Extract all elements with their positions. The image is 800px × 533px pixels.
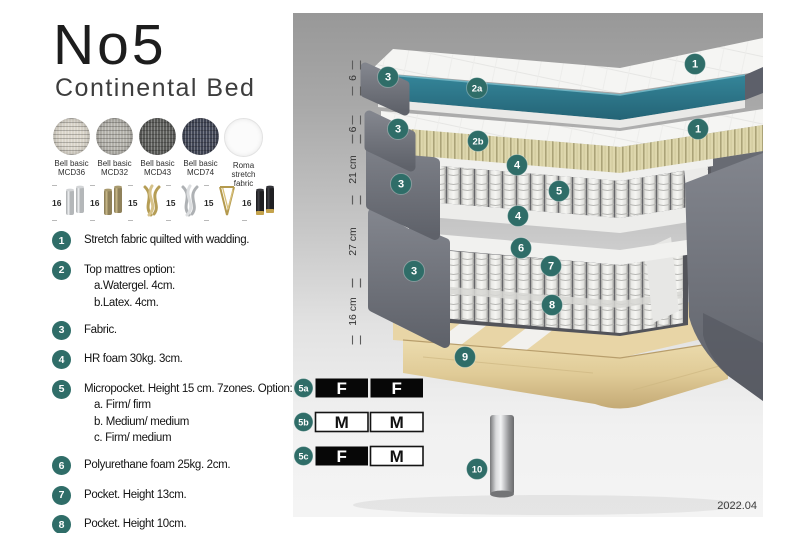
callout-label: 8: [549, 300, 555, 312]
bed-cross-section-diagram: 6621 cm27 cm16 cm 12a312b345346738910 5a…: [293, 13, 763, 517]
firmness-cell-label: M: [335, 413, 349, 432]
firmness-row-id: 5a: [298, 383, 309, 393]
leg-twist-gold-icon: [140, 184, 164, 223]
callout-badge-3: 3: [388, 119, 409, 140]
leg-hairpin-gold-icon: [216, 184, 240, 223]
legend-text: Top mattres option:: [84, 261, 175, 278]
fabric-swatch-circle: [96, 118, 133, 155]
callout-badge-3: 3: [391, 174, 412, 195]
leg-cylinder-brass-icon: [102, 184, 126, 223]
swatch-mcd36: Bell basicMCD36: [50, 118, 93, 188]
callout-badge-3: 3: [378, 67, 399, 88]
legend-number-badge: 5: [52, 380, 71, 399]
swatch-mcd74: Bell basicMCD74: [179, 118, 222, 188]
swatch-code: MCD36: [58, 168, 85, 177]
callout-badge-1: 1: [688, 119, 709, 140]
leg-option-twist-gold: 15: [128, 184, 166, 222]
legend-subtext: a. Firm/ firm: [94, 396, 292, 413]
callout-label: 1: [695, 124, 701, 136]
callout-label: 7: [548, 261, 554, 273]
swatch-mcd43: Bell basicMCD43: [136, 118, 179, 188]
legend-text-block: Pocket. Height 13cm.: [84, 486, 186, 505]
fabric-swatch-circle: [139, 118, 176, 155]
legend-text: Pocket. Height 13cm.: [84, 486, 186, 503]
callout-badge-1: 1: [685, 54, 706, 75]
legend-number-badge: 6: [52, 456, 71, 475]
callout-badge-6: 6: [511, 238, 532, 259]
callout-badge-5: 5: [549, 181, 570, 202]
legend-number-badge: 4: [52, 350, 71, 369]
page-subtitle: Continental Bed: [55, 74, 255, 103]
fabric-swatch-circle: [224, 118, 263, 157]
swatch-roma: Romastretch fabric: [222, 118, 265, 188]
legend-text-block: Fabric.: [84, 321, 117, 340]
legend-item-4: 4HR foam 30kg. 3cm.: [52, 350, 302, 369]
swatch-name: Bell basic: [54, 159, 88, 168]
legend-subtext: c. Firm/ medium: [94, 429, 292, 446]
legend-item-6: 6Polyurethane foam 25kg. 2cm.: [52, 456, 302, 475]
leg-height-label: 16: [52, 198, 64, 208]
legend-item-1: 1Stretch fabric quilted with wadding.: [52, 231, 302, 250]
swatch-name: Bell basic: [183, 159, 217, 168]
legend-item-2: 2Top mattres option:a.Watergel. 4cm.b.La…: [52, 261, 302, 311]
swatch-code: MCD32: [101, 168, 128, 177]
leg-height-label: 15: [128, 198, 140, 208]
diagram-panel: 6621 cm27 cm16 cm 12a312b345346738910 5a…: [293, 13, 763, 517]
swatch-name: Bell basic: [140, 159, 174, 168]
callout-label: 2a: [472, 84, 483, 95]
callout-badge-4: 4: [508, 206, 529, 227]
callout-badge-7: 7: [541, 256, 562, 277]
callout-badge-4: 4: [507, 155, 528, 176]
firmness-row-id: 5b: [298, 417, 309, 427]
legend-text-block: HR foam 30kg. 3cm.: [84, 350, 183, 369]
page: No5 Continental Bed Bell basicMCD36Bell …: [0, 0, 800, 533]
leg-height-label: 16: [242, 198, 254, 208]
ruler-label: 21 cm: [347, 155, 359, 184]
leg-options-row: 161615151516: [52, 184, 280, 222]
callout-label: 2b: [472, 137, 483, 148]
callout-badge-3: 3: [404, 261, 425, 282]
legend-text-block: Micropocket. Height 15 cm. 7zones. Optio…: [84, 380, 292, 446]
swatch-code: MCD43: [144, 168, 171, 177]
version-stamp: 2022.04: [717, 500, 757, 512]
firmness-cell-label: M: [390, 447, 404, 466]
metal-leg-front: [490, 415, 514, 498]
leg-cylinder-black-gold-icon: [254, 184, 278, 223]
firmness-row-id: 5c: [298, 451, 308, 461]
legend-number-badge: 2: [52, 261, 71, 280]
legend-text: Fabric.: [84, 321, 117, 338]
legend-number-badge: 3: [52, 321, 71, 340]
callout-label: 10: [472, 465, 483, 476]
ruler-label: 27 cm: [347, 227, 359, 256]
legend-text-block: Top mattres option:a.Watergel. 4cm.b.Lat…: [84, 261, 175, 311]
legend-text: Stretch fabric quilted with wadding.: [84, 231, 249, 248]
legend-item-5: 5Micropocket. Height 15 cm. 7zones. Opti…: [52, 380, 302, 446]
ruler-label: 16 cm: [347, 297, 359, 326]
callout-label: 3: [411, 266, 417, 278]
legend-subtext: a.Watergel. 4cm.: [94, 277, 175, 294]
legend-text-block: Polyurethane foam 25kg. 2cm.: [84, 456, 230, 475]
fabric-swatch-circle: [53, 118, 90, 155]
callout-label: 4: [514, 160, 521, 172]
leg-option-hairpin-gold: 15: [204, 184, 242, 222]
firmness-cell-label: F: [337, 447, 347, 466]
leg-cylinder-silver-icon: [64, 184, 88, 223]
legend-item-8: 8Pocket. Height 10cm.: [52, 515, 302, 533]
fabric-swatch-circle: [182, 118, 219, 155]
ruler-label: 6: [347, 75, 359, 81]
legend-list: 1Stretch fabric quilted with wadding.2To…: [52, 231, 302, 533]
swatch-name: Bell basic: [97, 159, 131, 168]
callout-badge-2a: 2a: [467, 78, 488, 99]
callout-label: 3: [395, 124, 401, 136]
callout-badge-8: 8: [542, 295, 563, 316]
legend-item-7: 7Pocket. Height 13cm.: [52, 486, 302, 505]
swatch-name: Roma: [233, 161, 254, 170]
legend-text-block: Pocket. Height 10cm.: [84, 515, 186, 533]
leg-option-cylinder-black-gold: 16: [242, 184, 280, 222]
legend-number-badge: 1: [52, 231, 71, 250]
floor-shadow: [353, 495, 743, 515]
firmness-cell-label: F: [392, 379, 402, 398]
callout-badge-2b: 2b: [468, 131, 489, 152]
legend-text: Micropocket. Height 15 cm. 7zones. Optio…: [84, 380, 292, 397]
leg-option-twist-silver: 15: [166, 184, 204, 222]
leg-height-label: 15: [166, 198, 178, 208]
callout-label: 6: [518, 243, 524, 255]
leg-option-cylinder-brass: 16: [90, 184, 128, 222]
leg-height-label: 16: [90, 198, 102, 208]
firmness-cell-label: F: [337, 379, 347, 398]
swatch-mcd32: Bell basicMCD32: [93, 118, 136, 188]
callout-label: 3: [385, 72, 391, 84]
firmness-cell-label: M: [390, 413, 404, 432]
swatch-code: MCD74: [187, 168, 214, 177]
legend-text: Pocket. Height 10cm.: [84, 515, 186, 532]
callout-label: 3: [398, 179, 404, 191]
ruler-label: 6: [347, 126, 359, 132]
leg-twist-silver-icon: [178, 184, 202, 223]
leg-option-cylinder-silver: 16: [52, 184, 90, 222]
legend-text: HR foam 30kg. 3cm.: [84, 350, 183, 367]
callout-label: 4: [515, 211, 522, 223]
callout-badge-10: 10: [467, 459, 488, 480]
callout-badge-9: 9: [455, 347, 476, 368]
legend-text: Polyurethane foam 25kg. 2cm.: [84, 456, 230, 473]
legend-number-badge: 7: [52, 486, 71, 505]
legend-subtext: b.Latex. 4cm.: [94, 294, 175, 311]
legend-subtext: b. Medium/ medium: [94, 413, 292, 430]
page-title: No5: [53, 16, 167, 74]
fabric-swatch-row: Bell basicMCD36Bell basicMCD32Bell basic…: [50, 118, 265, 188]
callout-label: 1: [692, 59, 698, 71]
legend-item-3: 3Fabric.: [52, 321, 302, 340]
leg-height-label: 15: [204, 198, 216, 208]
legend-text-block: Stretch fabric quilted with wadding.: [84, 231, 249, 250]
callout-label: 9: [462, 352, 468, 364]
callout-label: 5: [556, 186, 562, 198]
legend-number-badge: 8: [52, 515, 71, 533]
